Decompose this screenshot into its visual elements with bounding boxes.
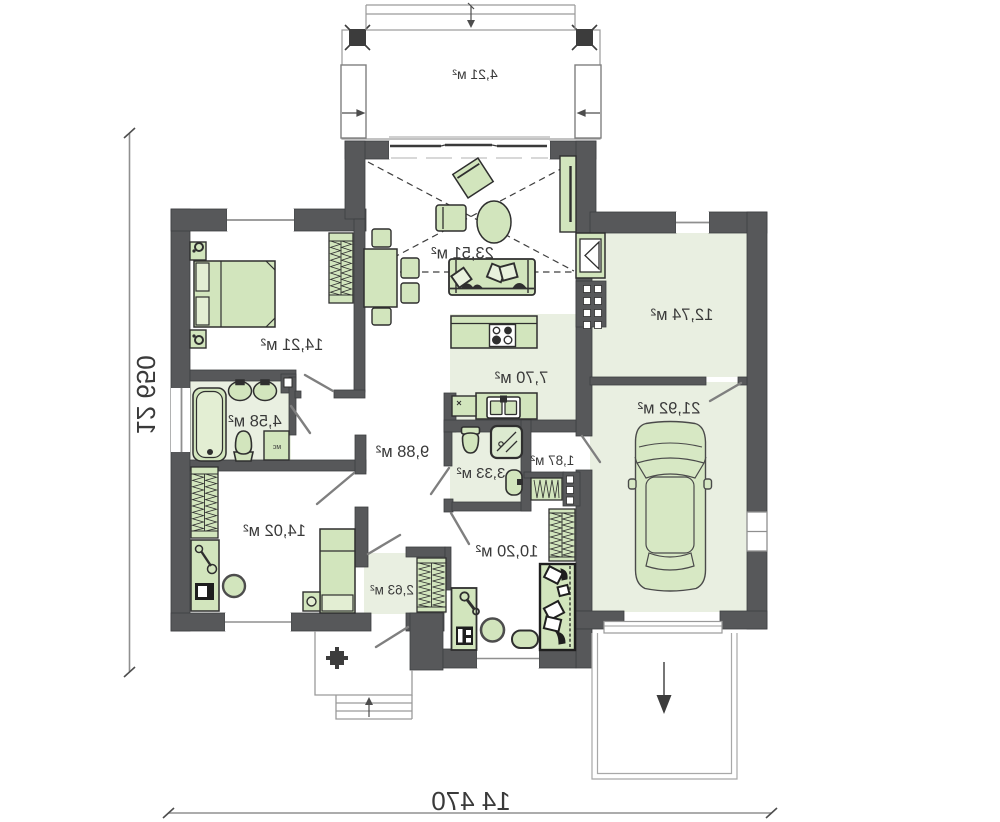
svg-text:4,58 м²: 4,58 м² [228,413,282,431]
svg-text:12,74 м²: 12,74 м² [650,306,713,324]
svg-text:1,87 м²: 1,87 м² [530,453,574,468]
svg-text:9,88 м²: 9,88 м² [375,443,429,461]
svg-text:23,51 м²: 23,51 м² [431,245,494,263]
svg-text:14,21 м²: 14,21 м² [260,336,323,354]
svg-text:12 650: 12 650 [131,355,161,435]
svg-text:2,63 м²: 2,63 м² [370,583,414,598]
svg-text:4,21 м²: 4,21 м² [452,66,498,82]
svg-text:3,33 м²: 3,33 м² [457,465,506,482]
svg-text:21,92 м²: 21,92 м² [637,400,700,418]
svg-text:7,70 м²: 7,70 м² [494,369,548,387]
svg-text:мс: мс [272,444,281,451]
svg-text:14 470: 14 470 [431,786,511,816]
svg-text:10,20 м²: 10,20 м² [475,543,538,561]
svg-text:14,02 м²: 14,02 м² [243,522,306,540]
